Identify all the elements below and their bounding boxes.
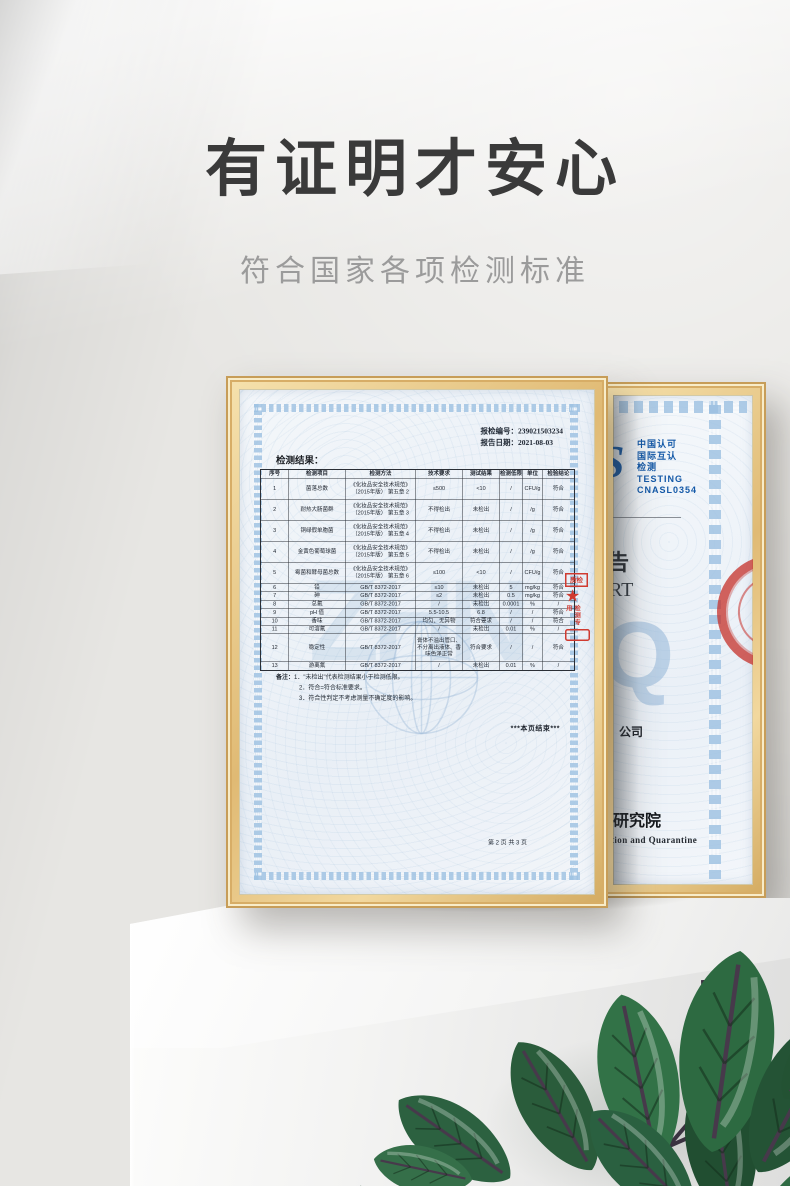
- table-cell: /: [500, 521, 523, 542]
- stamp-box: 质检: [565, 573, 588, 587]
- test-report-paper: ZHN 报检编号：239021503234 报告日期：2021-08-03 检测…: [239, 389, 595, 895]
- page-title: 有证明才安心: [40, 118, 790, 208]
- report-date-value: 2021-08-03: [518, 439, 553, 447]
- column-header: 技术要求: [416, 470, 463, 479]
- table-row: 1菌落总数《化妆品安全技术规范》（2015年版） 第五章 2≤500<10/CF…: [261, 479, 575, 500]
- table-cell: 未检出: [463, 521, 500, 542]
- table-cell: 符合要求: [463, 617, 500, 625]
- table-cell: 膏体不溢出管口、不分离出液体、香味色泽正常: [416, 634, 463, 662]
- table-cell: 0.01: [500, 662, 523, 671]
- table-cell: GB/T 8372-2017: [346, 617, 416, 625]
- table-cell: /: [500, 542, 523, 563]
- table-cell: 3: [261, 521, 289, 542]
- table-cell: 铜绿假单胞菌: [289, 521, 346, 542]
- border-ornament: [254, 404, 580, 412]
- table-cell: 稳定性: [289, 634, 346, 662]
- table-cell: 11: [261, 625, 289, 633]
- table-cell: 未检出: [463, 584, 500, 592]
- table-cell: /: [500, 617, 523, 625]
- report-number-label: 报检编号：: [480, 428, 518, 436]
- promo-page: { "hero": { "title": "有证明才安心", "subtitle…: [0, 0, 790, 1186]
- table-cell: CFU/g: [523, 563, 543, 584]
- table-cell: 符合: [543, 479, 575, 500]
- red-seal-inner-ring: [729, 567, 753, 658]
- table-cell: 6: [261, 584, 289, 592]
- table-cell: 《化妆品安全技术规范》（2015年版） 第五章 5: [346, 542, 416, 563]
- table-header-row: 序号检测项目检测方法技术要求测试结果检测低限单位检验结论: [261, 470, 575, 479]
- report-date-line: 报告日期：2021-08-03: [480, 438, 563, 450]
- table-cell: 游离氟: [289, 662, 346, 671]
- table-cell: 金黄色葡萄球菌: [289, 542, 346, 563]
- table-cell: 8: [261, 600, 289, 608]
- column-header: 检测方法: [346, 470, 416, 479]
- table-cell: <10: [463, 563, 500, 584]
- table-cell: GB/T 8372-2017: [346, 609, 416, 617]
- column-header: 序号: [261, 470, 289, 479]
- table-cell: /: [500, 500, 523, 521]
- table-cell: 耐热大肠菌群: [289, 500, 346, 521]
- table-row: 12稳定性GB/T 8372-2017膏体不溢出管口、不分离出液体、香味色泽正常…: [261, 634, 575, 662]
- table-cell: 未检出: [463, 600, 500, 608]
- cnas-line: 国际互认: [637, 451, 697, 463]
- table-row: 2耐热大肠菌群《化妆品安全技术规范》（2015年版） 第五章 3不得检出未检出/…: [261, 500, 575, 521]
- table-cell: GB/T 8372-2017: [346, 662, 416, 671]
- table-cell: 5.5-10.5: [416, 609, 463, 617]
- hero-text: 有证明才安心 符合国家各项检测标准: [0, 118, 790, 290]
- notes-label: 备注：: [276, 674, 294, 681]
- column-header: 测试结果: [463, 470, 500, 479]
- table-row: 4金黄色葡萄球菌《化妆品安全技术规范》（2015年版） 第五章 5不得检出未检出…: [261, 542, 575, 563]
- table-cell: /: [500, 634, 523, 662]
- table-cell: <10: [463, 479, 500, 500]
- table-cell: 符合要求: [463, 634, 500, 662]
- stamp-vertical-text: 检测专用: [565, 605, 582, 627]
- table-cell: GB/T 8372-2017: [346, 584, 416, 592]
- table-cell: 总氟: [289, 600, 346, 608]
- table-cell: 符合: [543, 500, 575, 521]
- pedestal-edge-highlight: [130, 922, 135, 1186]
- table-cell: 霉菌和酵母菌总数: [289, 563, 346, 584]
- table-row: 6铅GB/T 8372-2017≤10未检出5mg/kg符合: [261, 584, 575, 592]
- table-cell: GB/T 8372-2017: [346, 592, 416, 600]
- table-cell: 9: [261, 609, 289, 617]
- test-report-content: ZHN 报检编号：239021503234 报告日期：2021-08-03 检测…: [239, 389, 595, 895]
- report-notes: 备注：1．"未检出"代表检测结果小于检测低限。2．符合=符合标准要求。3．符合性…: [276, 672, 416, 704]
- stamp-outline-box: [565, 629, 590, 641]
- note-line: 3．符合性判定不考虑测量不确定度的影响。: [276, 693, 416, 704]
- table-cell: pH 值: [289, 609, 346, 617]
- table-cell: 《化妆品安全技术规范》（2015年版） 第五章 4: [346, 521, 416, 542]
- report-number-line: 报检编号：239021503234: [480, 426, 563, 438]
- section-title: 检测结果：: [276, 453, 324, 467]
- table-row: 7砷GB/T 8372-2017≤2未检出0.5mg/kg符合: [261, 592, 575, 600]
- table-cell: mg/kg: [523, 584, 543, 592]
- table-cell: %: [523, 662, 543, 671]
- table-cell: 《化妆品安全技术规范》（2015年版） 第五章 2: [346, 479, 416, 500]
- table-cell: 不得检出: [416, 521, 463, 542]
- table-cell: /g: [523, 521, 543, 542]
- table-cell: 不得检出: [416, 542, 463, 563]
- front-certificate-frame: ZHN 报检编号：239021503234 报告日期：2021-08-03 检测…: [226, 376, 608, 908]
- table-cell: /: [500, 563, 523, 584]
- table-cell: 5: [261, 563, 289, 584]
- table-cell: GB/T 8372-2017: [346, 634, 416, 662]
- table-cell: /: [416, 662, 463, 671]
- table-row: 8总氟GB/T 8372-2017/未检出0.0001%/: [261, 600, 575, 608]
- note-line: 2．符合=符合标准要求。: [276, 683, 416, 694]
- table-cell: ≤10: [416, 584, 463, 592]
- back-certificate-frame: S 中国认可 国际互认 检测 TESTING CNASL0354 告 RT Q …: [600, 382, 766, 898]
- table-cell: ≤2: [416, 592, 463, 600]
- table-cell: 5: [500, 584, 523, 592]
- table-cell: GB/T 8372-2017: [346, 600, 416, 608]
- table-cell: 12: [261, 634, 289, 662]
- table-row: 13游离氟GB/T 8372-2017/未检出0.01%/: [261, 662, 575, 671]
- table-cell: mg/kg: [523, 592, 543, 600]
- table-cell: 香味: [289, 617, 346, 625]
- table-cell: 2: [261, 500, 289, 521]
- red-stamp-fragment: 质检 ★ 检测专用: [565, 573, 591, 663]
- table-cell: 符合: [543, 521, 575, 542]
- table-row: 3铜绿假单胞菌《化妆品安全技术规范》（2015年版） 第五章 4不得检出未检出/…: [261, 521, 575, 542]
- border-ornament: [254, 872, 580, 880]
- page-subtitle: 符合国家各项检测标准: [40, 246, 790, 290]
- table-cell: ≤100: [416, 563, 463, 584]
- table-cell: 菌落总数: [289, 479, 346, 500]
- back-certificate-paper: S 中国认可 国际互认 检测 TESTING CNASL0354 告 RT Q …: [613, 395, 753, 885]
- table-row: 5霉菌和酵母菌总数《化妆品安全技术规范》（2015年版） 第五章 6≤100<1…: [261, 563, 575, 584]
- table-row: 9pH 值GB/T 8372-20175.5-10.56.8//符合: [261, 609, 575, 617]
- table-cell: 6.8: [463, 609, 500, 617]
- table-cell: 《化妆品安全技术规范》（2015年版） 第五章 6: [346, 563, 416, 584]
- table-cell: /: [500, 479, 523, 500]
- table-cell: 不得检出: [416, 500, 463, 521]
- table-cell: GB/T 8372-2017: [346, 625, 416, 633]
- table-cell: /g: [523, 500, 543, 521]
- front-frame-cast-shadow: [613, 395, 639, 885]
- table-cell: /: [543, 662, 575, 671]
- table-cell: 10: [261, 617, 289, 625]
- table-cell: 0.5: [500, 592, 523, 600]
- page-end-marker: ***本页结束***: [511, 723, 560, 733]
- table-cell: 13: [261, 662, 289, 671]
- table-cell: CFU/g: [523, 479, 543, 500]
- table-cell: /: [523, 609, 543, 617]
- table-cell: 未检出: [463, 500, 500, 521]
- table-cell: 未检出: [463, 592, 500, 600]
- star-icon: ★: [565, 587, 591, 605]
- table-cell: 0.0001: [500, 600, 523, 608]
- cnas-text-block: 中国认可 国际互认 检测 TESTING CNASL0354: [637, 439, 697, 497]
- table-cell: %: [523, 625, 543, 633]
- page-number: 第 2 页 共 3 页: [488, 838, 527, 847]
- table-cell: 4: [261, 542, 289, 563]
- table-cell: 《化妆品安全技术规范》（2015年版） 第五章 3: [346, 500, 416, 521]
- table-cell: 铅: [289, 584, 346, 592]
- fiddle-leaf-plant: [360, 920, 790, 1186]
- table-cell: 7: [261, 592, 289, 600]
- table-cell: 可溶氟: [289, 625, 346, 633]
- cnas-line: CNASL0354: [637, 485, 697, 497]
- cnas-line: 检测: [637, 462, 697, 474]
- report-number-value: 239021503234: [518, 428, 563, 436]
- table-cell: 砷: [289, 592, 346, 600]
- cnas-line: 中国认可: [637, 439, 697, 451]
- table-cell: /: [523, 634, 543, 662]
- results-table: 序号检测项目检测方法技术要求测试结果检测低限单位检验结论 1菌落总数《化妆品安全…: [260, 469, 575, 671]
- report-meta: 报检编号：239021503234 报告日期：2021-08-03: [480, 426, 563, 449]
- table-cell: /g: [523, 542, 543, 563]
- table-cell: /: [523, 617, 543, 625]
- table-cell: %: [523, 600, 543, 608]
- table-cell: 0.01: [500, 625, 523, 633]
- table-row: 10香味GB/T 8372-2017均匀、无异物符合要求//符合: [261, 617, 575, 625]
- table-row: 11可溶氟GB/T 8372-2017/未检出0.01%/: [261, 625, 575, 633]
- report-date-label: 报告日期：: [480, 439, 518, 447]
- table-cell: 均匀、无异物: [416, 617, 463, 625]
- table-cell: 符合: [543, 542, 575, 563]
- table-cell: /: [416, 625, 463, 633]
- table-cell: /: [500, 609, 523, 617]
- note-line: 备注：1．"未检出"代表检测结果小于检测低限。: [276, 672, 416, 683]
- table-cell: 未检出: [463, 542, 500, 563]
- cnas-line: TESTING: [637, 474, 697, 486]
- table-cell: 未检出: [463, 662, 500, 671]
- table-cell: 1: [261, 479, 289, 500]
- table-cell: /: [416, 600, 463, 608]
- table-cell: ≤500: [416, 479, 463, 500]
- border-ornament: [709, 401, 721, 879]
- column-header: 检验结论: [543, 470, 575, 479]
- table-cell: 未检出: [463, 625, 500, 633]
- column-header: 单位: [523, 470, 543, 479]
- column-header: 检测低限: [500, 470, 523, 479]
- column-header: 检测项目: [289, 470, 346, 479]
